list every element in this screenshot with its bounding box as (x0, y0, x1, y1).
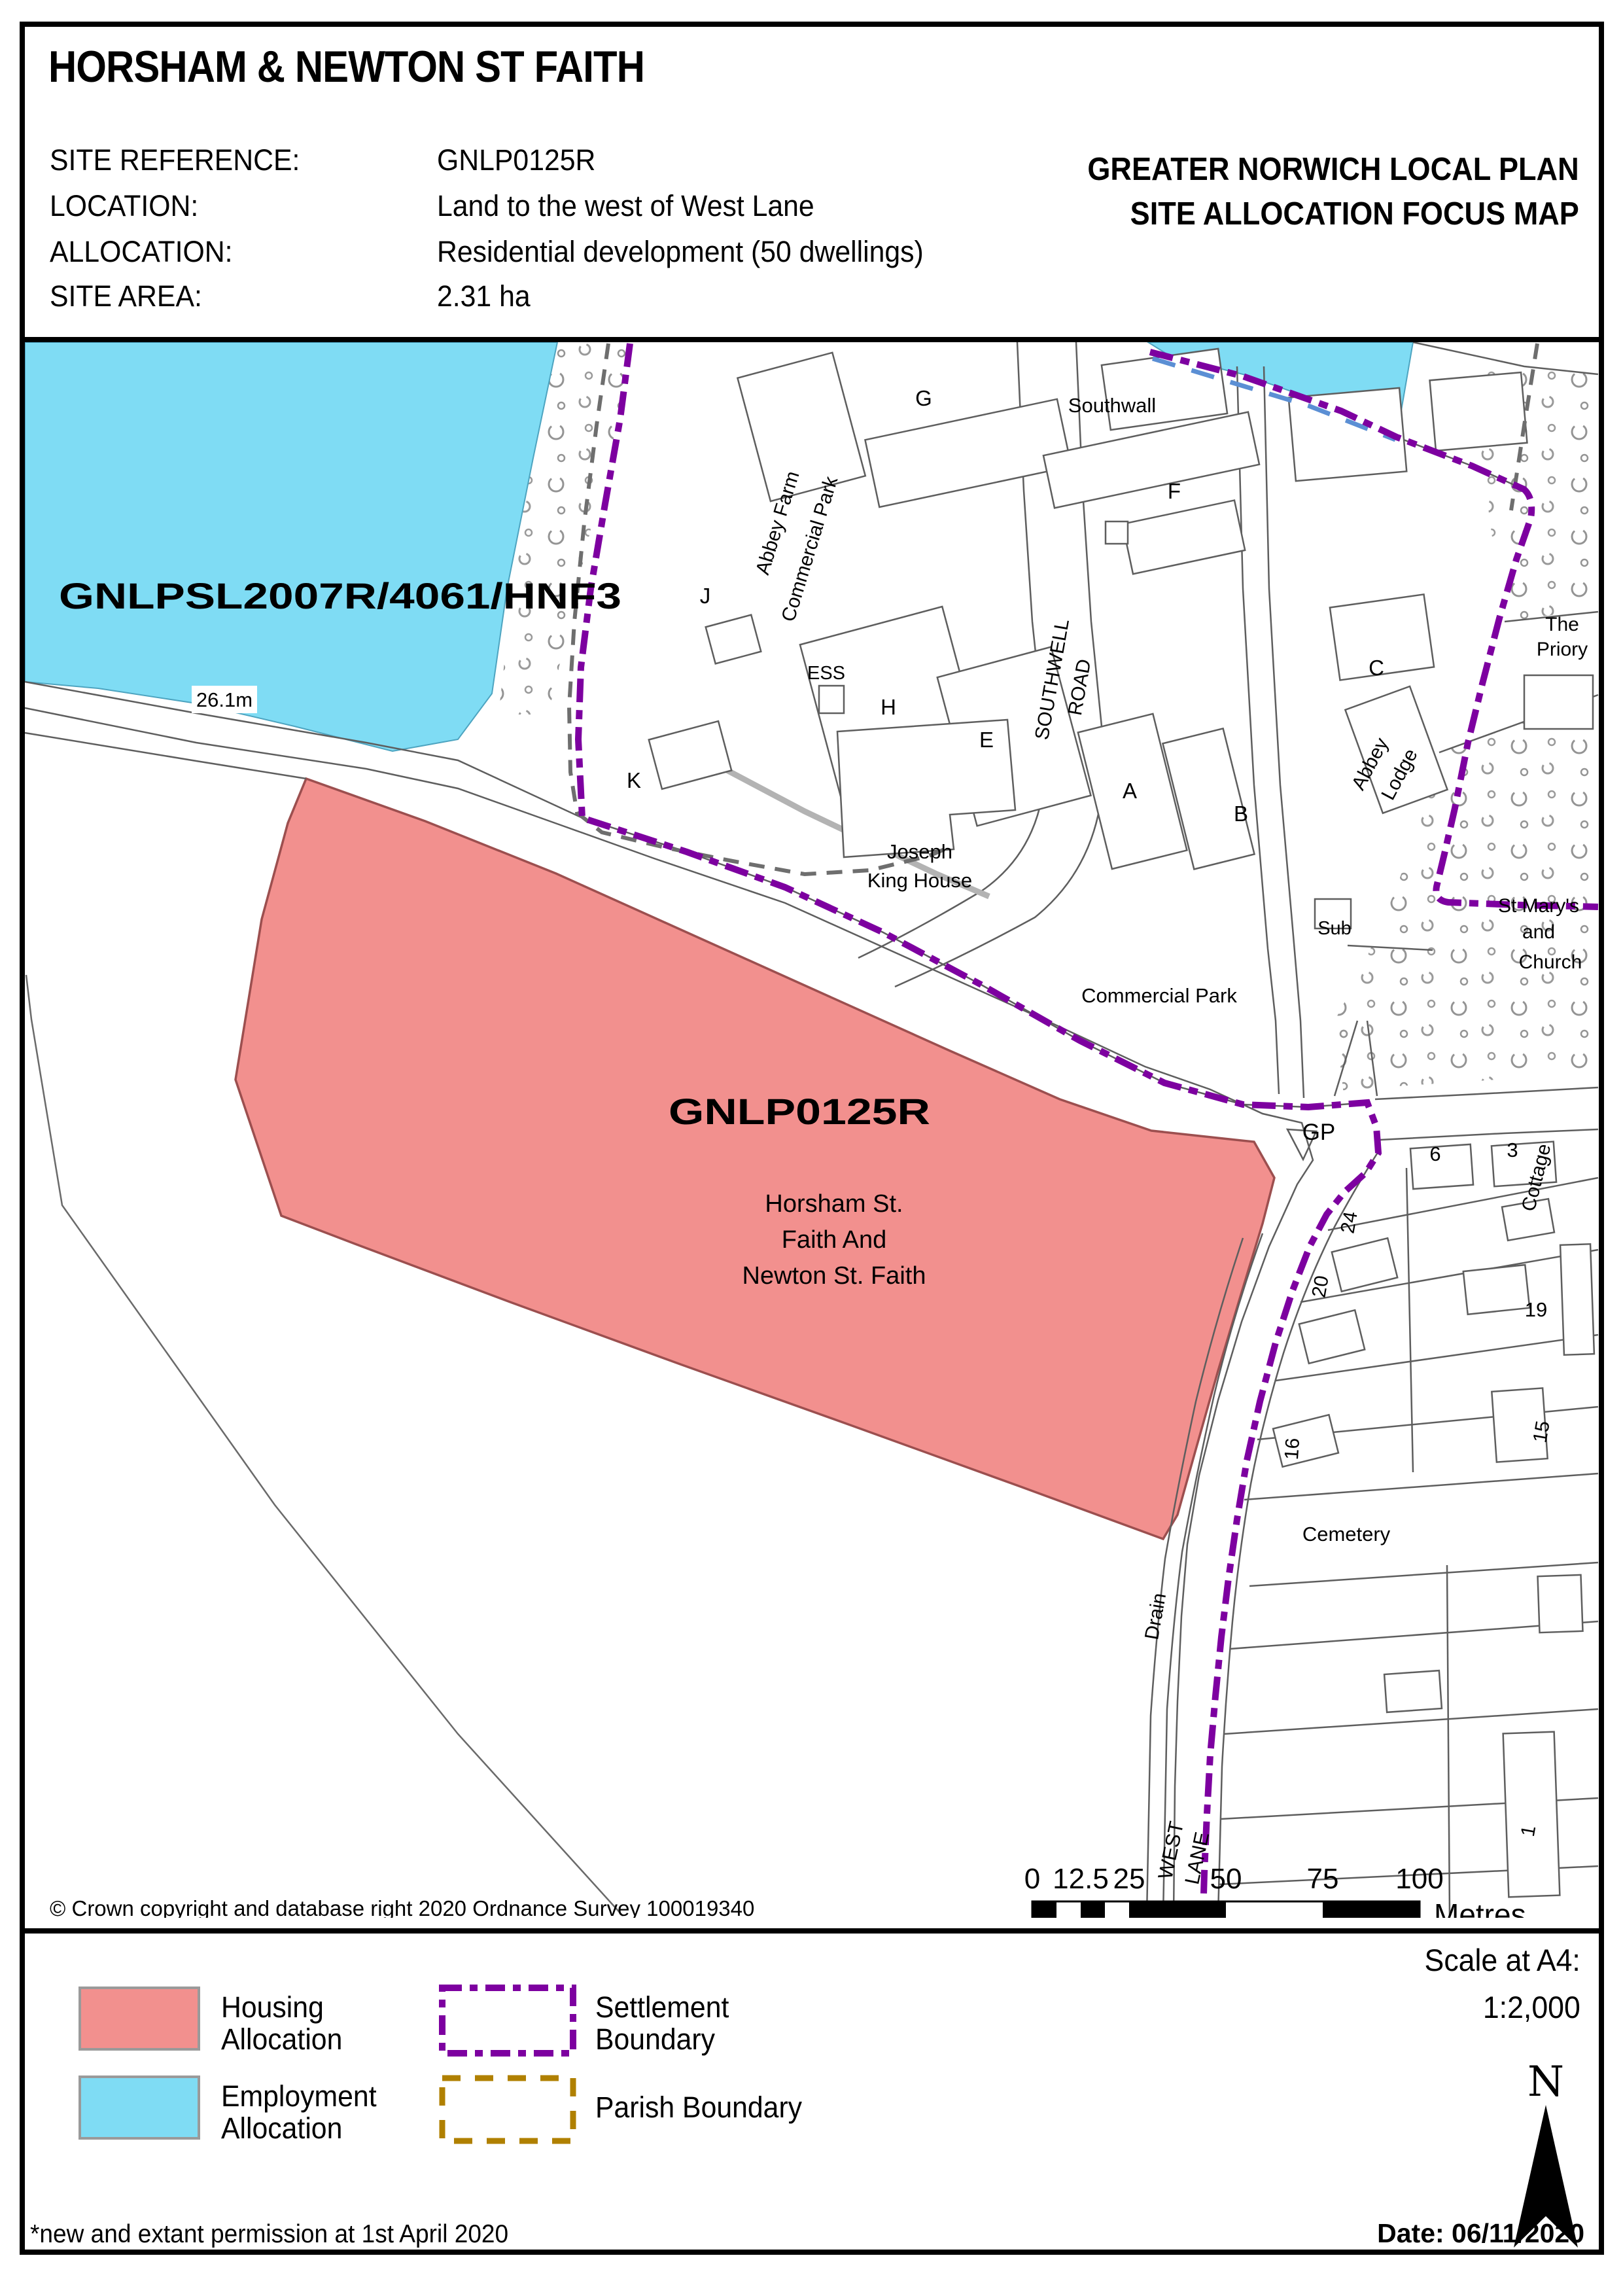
location-value: Land to the west of West Lane (437, 189, 814, 223)
map-label-26-1m: 26.1m (196, 688, 253, 711)
page-title: HORSHAM & NEWTON ST FAITH (48, 41, 644, 92)
map-label-16: 16 (1281, 1438, 1304, 1461)
map-copyright: © Crown copyright and database right 202… (50, 1896, 754, 1918)
plan-title-line1: GREATER NORWICH LOCAL PLAN (1088, 151, 1579, 188)
legend-parish-label: Parish Boundary (595, 2091, 802, 2123)
map-frame: © Crown copyright and database right 202… (25, 337, 1599, 1934)
site-area-value: 2.31 ha (437, 279, 531, 313)
map-label-road: ROAD (1064, 658, 1096, 717)
plan-sheet-page: { "header": { "title": "HORSHAM & NEWTON… (0, 0, 1623, 2296)
map-label-horsham-st-: Horsham St. (765, 1190, 903, 1218)
scale-at-a4-label: Scale at A4: (1425, 1942, 1580, 1978)
scale-tick-25: 25 (1113, 1863, 1145, 1895)
map-label-the: The (1545, 614, 1579, 635)
site-reference-label: SITE REFERENCE: (50, 143, 300, 177)
map-label-b: B (1234, 802, 1248, 826)
map-label-g: G (915, 386, 932, 410)
legend-settlement-swatch (437, 1983, 578, 2058)
map-label-6: 6 (1429, 1142, 1440, 1165)
map-label-southwall: Southwall (1068, 394, 1156, 417)
map-label-a: A (1123, 779, 1137, 803)
map-canvas[interactable]: © Crown copyright and database right 202… (25, 342, 1599, 1918)
map-label-cemetery: Cemetery (1302, 1523, 1391, 1545)
map-label-ess: ESS (807, 663, 845, 684)
allocation-value: Residential development (50 dwellings) (437, 235, 924, 269)
employment-area-west[interactable] (25, 342, 557, 751)
scale-tick-75: 75 (1307, 1863, 1339, 1895)
scale-value: 1:2,000 (1483, 1989, 1580, 2025)
scale-tick-50: 50 (1210, 1863, 1242, 1895)
map-label-and: and (1522, 921, 1555, 943)
footer-note: *new and extant permission at 1st April … (30, 2220, 508, 2249)
map-label-commercial-park: Commercial Park (1081, 984, 1237, 1007)
legend-housing-label: HousingAllocation (221, 1991, 342, 2055)
map-label-st-mary-s: St Mary's (1498, 895, 1579, 917)
plan-title-line2: SITE ALLOCATION FOCUS MAP (1130, 196, 1579, 232)
map-label-f: F (1168, 479, 1181, 503)
map-label-c: C (1369, 656, 1384, 680)
map-label-joseph: Joseph (887, 840, 952, 863)
legend-housing-swatch (79, 1987, 200, 2051)
scale-tick-12.5: 12.5 (1053, 1863, 1109, 1895)
map-label-king-house: King House (867, 869, 972, 892)
map-label-lane: LANE (1180, 1830, 1213, 1886)
map-label-24: 24 (1336, 1210, 1361, 1235)
map-label-faith-and: Faith And (782, 1226, 887, 1254)
map-label-gp: GP (1302, 1120, 1336, 1145)
legend-employment-swatch (79, 2075, 200, 2140)
map-label-gnlpsl2007r-4061-hnf3: GNLPSL2007R/4061/HNF3 (59, 575, 621, 616)
map-label-drain: Drain (1141, 1591, 1170, 1641)
map-label-h: H (881, 695, 896, 719)
scale-tick-0: 0 (1024, 1863, 1040, 1895)
map-label-j: J (700, 584, 711, 608)
location-label: LOCATION: (50, 189, 198, 223)
map-label-e: E (979, 728, 994, 752)
map-label-3: 3 (1507, 1139, 1518, 1161)
map-label-15: 15 (1529, 1419, 1554, 1445)
legend-employment-label: EmploymentAllocation (221, 2080, 377, 2144)
north-label: N (1516, 2058, 1575, 2106)
map-label-priory: Priory (1537, 639, 1588, 660)
map-label-newton-st-faith: Newton St. Faith (742, 1262, 926, 1290)
map-label-sub: Sub (1318, 918, 1352, 939)
map-label-k: K (627, 768, 641, 792)
map-label-19: 19 (1525, 1298, 1547, 1321)
sheet-border: HORSHAM & NEWTON ST FAITH SITE REFERENCE… (20, 22, 1604, 2255)
map-label-gnlp0125r: GNLP0125R (669, 1091, 930, 1132)
scale-bar-unit: Metres (1434, 1898, 1526, 1918)
map-label-20: 20 (1308, 1274, 1333, 1299)
site-area-label: SITE AREA: (50, 279, 202, 313)
site-reference-value: GNLP0125R (437, 143, 595, 177)
legend-parish-swatch (437, 2073, 578, 2146)
allocation-label: ALLOCATION: (50, 235, 233, 269)
legend-settlement-label: SettlementBoundary (595, 1991, 729, 2055)
scale-bar: Metres (1032, 1898, 1526, 1918)
date-label: Date: 06/11/2020 (1377, 2218, 1584, 2249)
map-label-church: Church (1519, 951, 1582, 973)
scale-tick-100: 100 (1395, 1863, 1443, 1895)
